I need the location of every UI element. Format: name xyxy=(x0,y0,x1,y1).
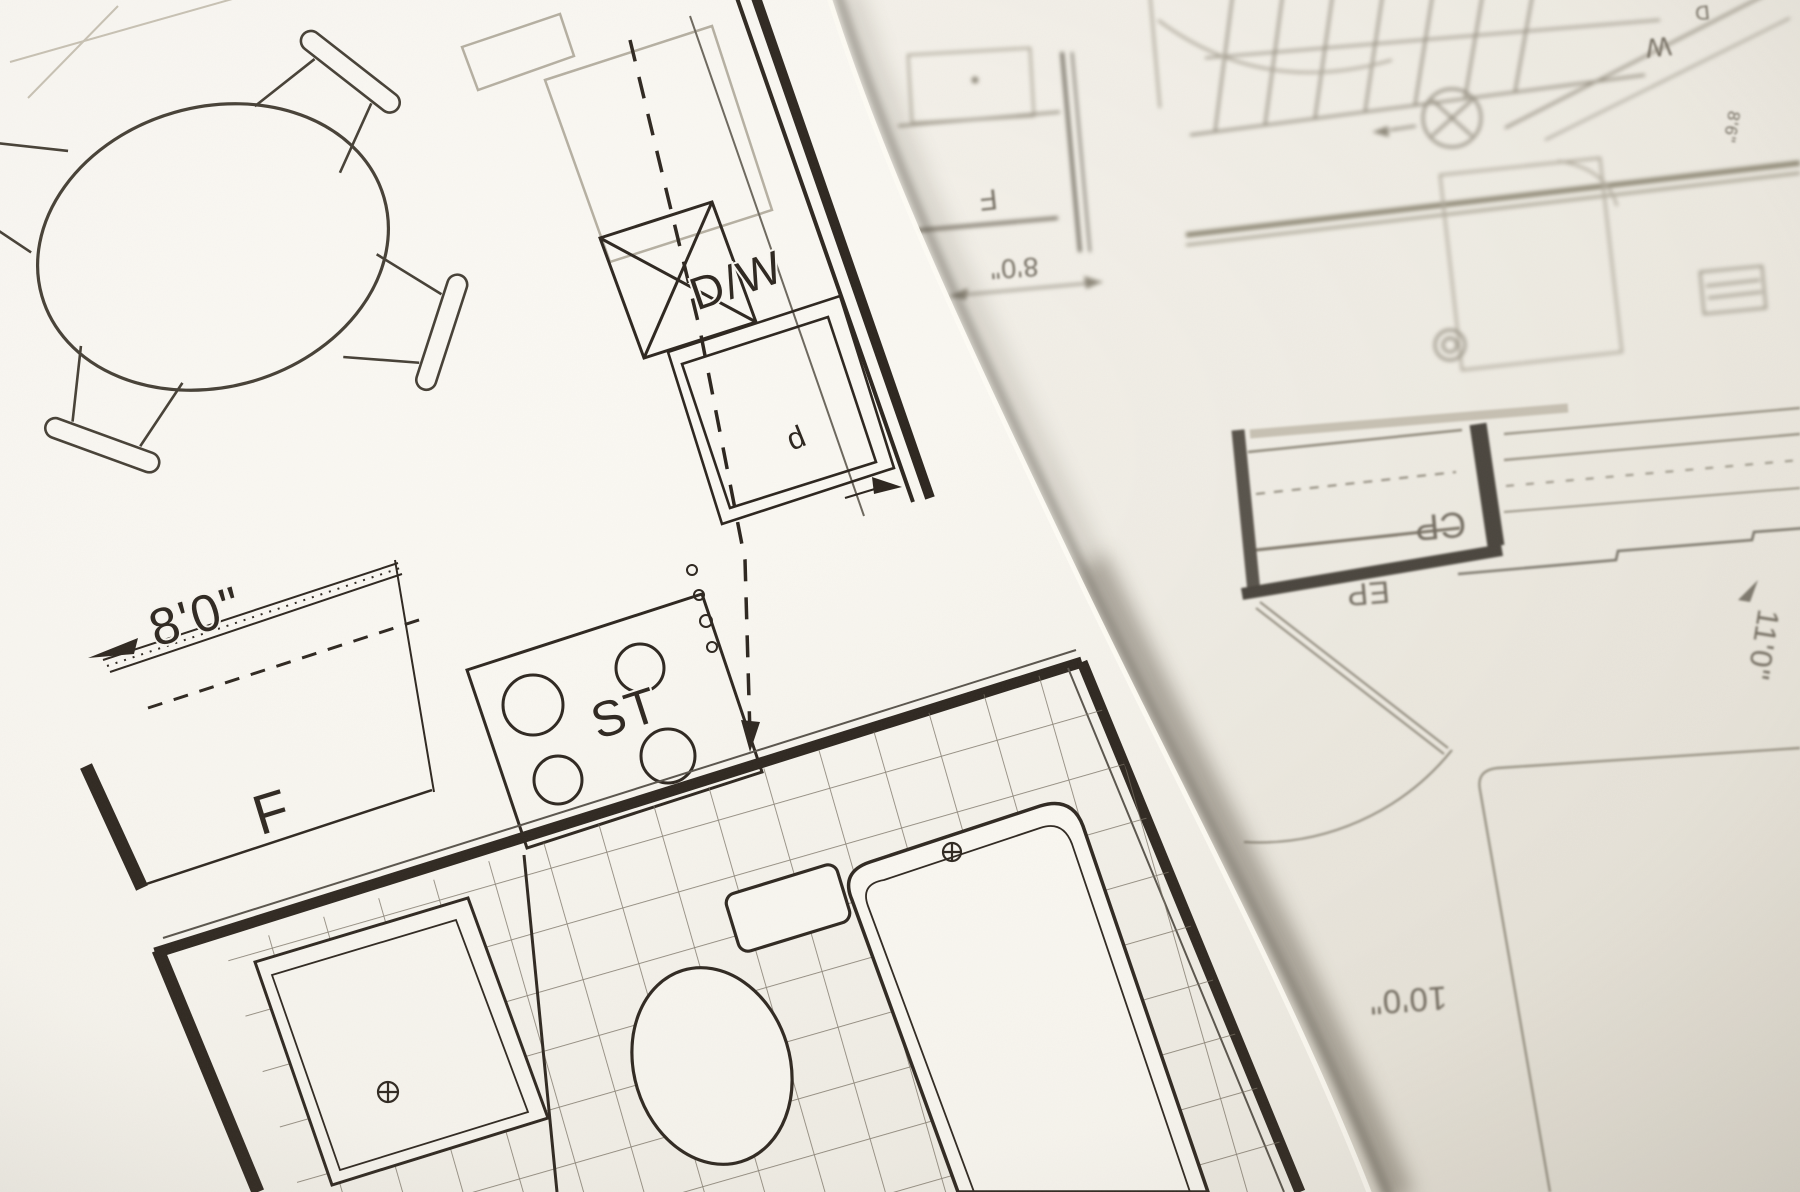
vignette-overlay xyxy=(0,0,1800,1192)
blueprint-photo-canvas: D W 8'6" F 8'0" CP EP 11'0" 10'0" xyxy=(0,0,1800,1192)
blueprint-photo: D W 8'6" F 8'0" CP EP 11'0" 10'0" xyxy=(0,0,1800,1192)
